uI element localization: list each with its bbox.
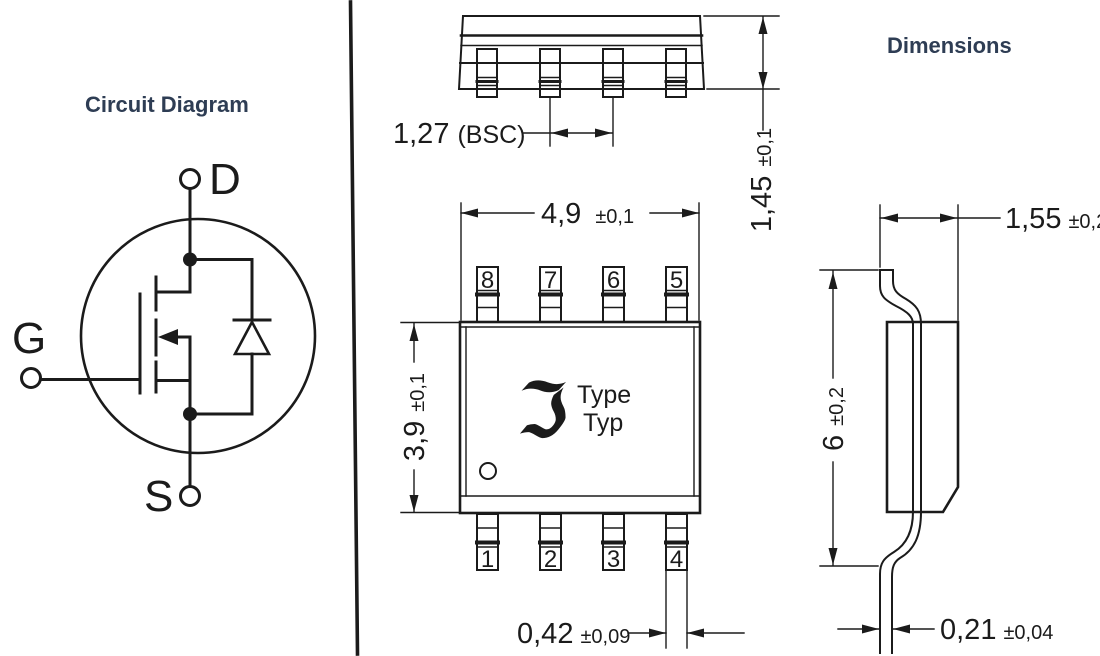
diotec-logo: ℑ — [516, 366, 569, 455]
dim-body-length-text: 3,9±0,1 — [399, 373, 431, 461]
pin-number: 8 — [481, 267, 494, 294]
pin1-indicator-dot — [480, 463, 496, 479]
side-bottom-lead — [880, 512, 921, 653]
dim-shoulder-width-text: 1,55±0,2 — [1005, 203, 1100, 235]
pin-number: 1 — [481, 546, 494, 573]
dimension-arrow — [881, 214, 898, 223]
front-view-bottom-pins: 1 2 3 4 — [477, 514, 687, 573]
lead-outer-curve — [880, 270, 913, 324]
lead-inner-curve — [893, 270, 921, 324]
dimensions-panel: Dimensions — [393, 16, 1100, 653]
dimension-arrow — [595, 129, 612, 138]
drain-terminal-node — [181, 170, 200, 189]
drain-label: D — [209, 155, 241, 204]
datasheet-figure: Circuit Diagram — [0, 0, 1100, 656]
pin-number: 3 — [607, 546, 620, 573]
dim-overall-span-text: 6±0,2 — [818, 387, 850, 451]
marking-line2: Typ — [583, 409, 623, 437]
pin-number: 4 — [670, 546, 683, 573]
side-top-lead — [880, 270, 921, 324]
dim-lead-thickness-text: 0,21±0,04 — [940, 614, 1053, 646]
dimension-arrow — [649, 629, 666, 638]
dim-body-width-text: 4,9±0,1 — [541, 198, 634, 230]
front-view-top-pins: 8 7 6 5 — [477, 267, 687, 322]
dim-package-height: 1,45±0,1 — [704, 16, 779, 232]
dimension-arrow — [829, 272, 838, 289]
package-top-view — [459, 16, 704, 97]
technical-drawing: Circuit Diagram — [0, 0, 1100, 656]
dimension-arrow — [682, 209, 699, 218]
gate-label: G — [12, 314, 46, 363]
dim-pin-pitch: 1,27(BSC) — [393, 98, 613, 150]
body-diode — [190, 260, 270, 415]
dimension-arrow — [759, 17, 768, 34]
dim-lead-thickness: 0,21±0,04 — [838, 614, 1053, 646]
dim-body-width: 4,9±0,1 — [461, 198, 699, 320]
dim-overall-span: 6±0,2 — [818, 270, 878, 566]
dim-lead-width-text: 0,42±0,09 — [517, 618, 630, 650]
dimension-arrow — [940, 214, 957, 223]
dimension-arrow — [862, 625, 879, 634]
front-body-outline — [460, 322, 700, 513]
panel-divider — [351, 2, 358, 654]
pin-number: 2 — [544, 546, 557, 573]
gate-terminal-node — [22, 369, 41, 388]
pin-number: 6 — [607, 267, 620, 294]
dimension-arrow — [551, 129, 568, 138]
package-front-view: ℑ Type Typ 8 7 6 — [460, 267, 700, 573]
source-terminal-node — [181, 487, 200, 506]
side-body-outline — [887, 322, 958, 512]
dim-shoulder-width: 1,55±0,2 — [880, 203, 1100, 320]
dimension-arrow — [893, 625, 910, 634]
dimension-arrow — [461, 209, 478, 218]
dim-pin-pitch-text: 1,27(BSC) — [393, 118, 526, 150]
pin-number: 7 — [544, 267, 557, 294]
dimension-arrow — [829, 548, 838, 565]
pin-number: 5 — [670, 267, 683, 294]
marking-line1: Type — [577, 381, 631, 409]
package-side-view — [880, 270, 958, 653]
dim-lead-width: 0,42±0,09 — [517, 571, 744, 650]
dim-body-length: 3,9±0,1 — [399, 323, 459, 513]
dim-package-height-text: 1,45±0,1 — [746, 128, 778, 232]
diode-triangle — [235, 322, 269, 354]
transistor-enclosure-circle — [81, 219, 315, 453]
source-label: S — [144, 472, 173, 521]
dimension-arrow — [410, 324, 419, 341]
mosfet-symbol — [22, 170, 316, 506]
circuit-diagram-panel: Circuit Diagram — [12, 92, 315, 521]
dimension-arrow — [410, 495, 419, 512]
circuit-title: Circuit Diagram — [85, 92, 249, 117]
dimensions-title: Dimensions — [887, 33, 1012, 58]
dimension-arrow — [759, 72, 768, 89]
dimension-arrow — [687, 629, 704, 638]
